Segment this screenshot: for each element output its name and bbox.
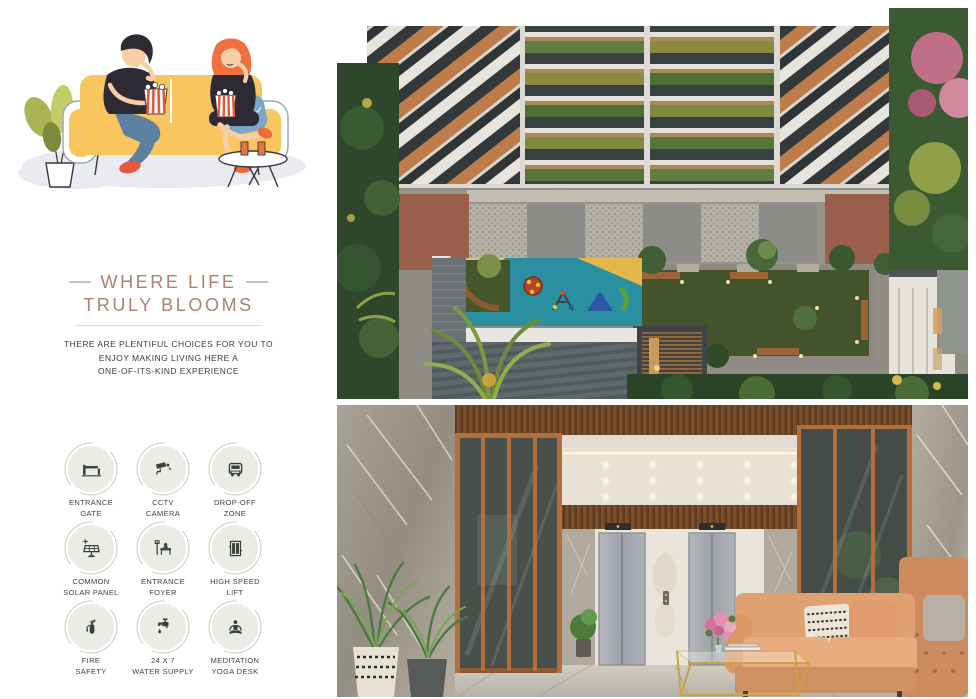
heading-dash-right bbox=[246, 281, 268, 283]
fire-safety-icon bbox=[68, 604, 114, 650]
heading-divider bbox=[76, 325, 262, 326]
lobby-interior-render bbox=[337, 405, 968, 697]
amenity-item-high-speed-lift: HIGH SPEEDLIFT bbox=[199, 525, 271, 595]
drop-off-zone-icon bbox=[212, 446, 258, 492]
glass-entrance-doors bbox=[455, 433, 562, 673]
high-speed-lift-icon bbox=[212, 525, 258, 571]
amenity-item-fire-safety: FIRESAFETY bbox=[55, 604, 127, 674]
meditation-yoga-desk-icon bbox=[212, 604, 258, 650]
left-tree-strip bbox=[337, 63, 400, 399]
intro-line-3: ONE-OF-ITS-KIND EXPERIENCE bbox=[0, 365, 337, 379]
entrance-gate-icon bbox=[68, 446, 114, 492]
planter-rows bbox=[519, 26, 780, 188]
brochure-left-panel: WHERE LIFE TRULY BLOOMS THERE ARE PLENTI… bbox=[0, 0, 337, 699]
intro-line-1: THERE ARE PLENTIFUL CHOICES FOR YOU TO bbox=[0, 338, 337, 352]
cctv-camera-icon bbox=[140, 446, 186, 492]
bottom-tree-band bbox=[627, 374, 968, 399]
page-title-line2: TRULY BLOOMS bbox=[0, 294, 337, 317]
intro-line-2: ENJOY MAKING LIVING HERE A bbox=[0, 352, 337, 366]
patterned-pot bbox=[353, 647, 399, 697]
brochure-right-panel bbox=[337, 0, 968, 699]
elevator-door-left bbox=[599, 523, 645, 665]
right-tree-strip bbox=[889, 8, 968, 288]
aerial-courtyard-render bbox=[337, 8, 968, 399]
page-title: WHERE LIFE bbox=[100, 271, 236, 294]
amenity-item-entrance-gate: ENTRANCEGATE bbox=[55, 446, 127, 516]
amenities-grid: ENTRANCEGATE CCTVCAMERA bbox=[55, 446, 271, 674]
water-supply-icon bbox=[140, 604, 186, 650]
amenity-item-drop-off-zone: DROP-OFFZONE bbox=[199, 446, 271, 516]
amenity-item-common-solar-panel: COMMONSOLAR PANEL bbox=[55, 525, 127, 595]
common-solar-panel-icon bbox=[68, 525, 114, 571]
section-heading-block: WHERE LIFE TRULY BLOOMS THERE ARE PLENTI… bbox=[0, 271, 337, 379]
gray-pot bbox=[407, 659, 447, 697]
heading-dash-left bbox=[69, 281, 91, 283]
couple-on-sofa-illustration bbox=[6, 14, 312, 190]
amenity-item-entrance-foyer: ENTRANCEFOYER bbox=[127, 525, 199, 595]
entrance-foyer-icon bbox=[140, 525, 186, 571]
amenity-item-meditation-yoga-desk: MEDITATIONYOGA DESK bbox=[199, 604, 271, 674]
amenity-item-cctv-camera: CCTVCAMERA bbox=[127, 446, 199, 516]
intro-paragraph: THERE ARE PLENTIFUL CHOICES FOR YOU TO E… bbox=[0, 338, 337, 379]
amenity-item-water-supply: 24 X 7WATER SUPPLY bbox=[127, 604, 199, 674]
elevator-call-panel bbox=[663, 591, 669, 605]
